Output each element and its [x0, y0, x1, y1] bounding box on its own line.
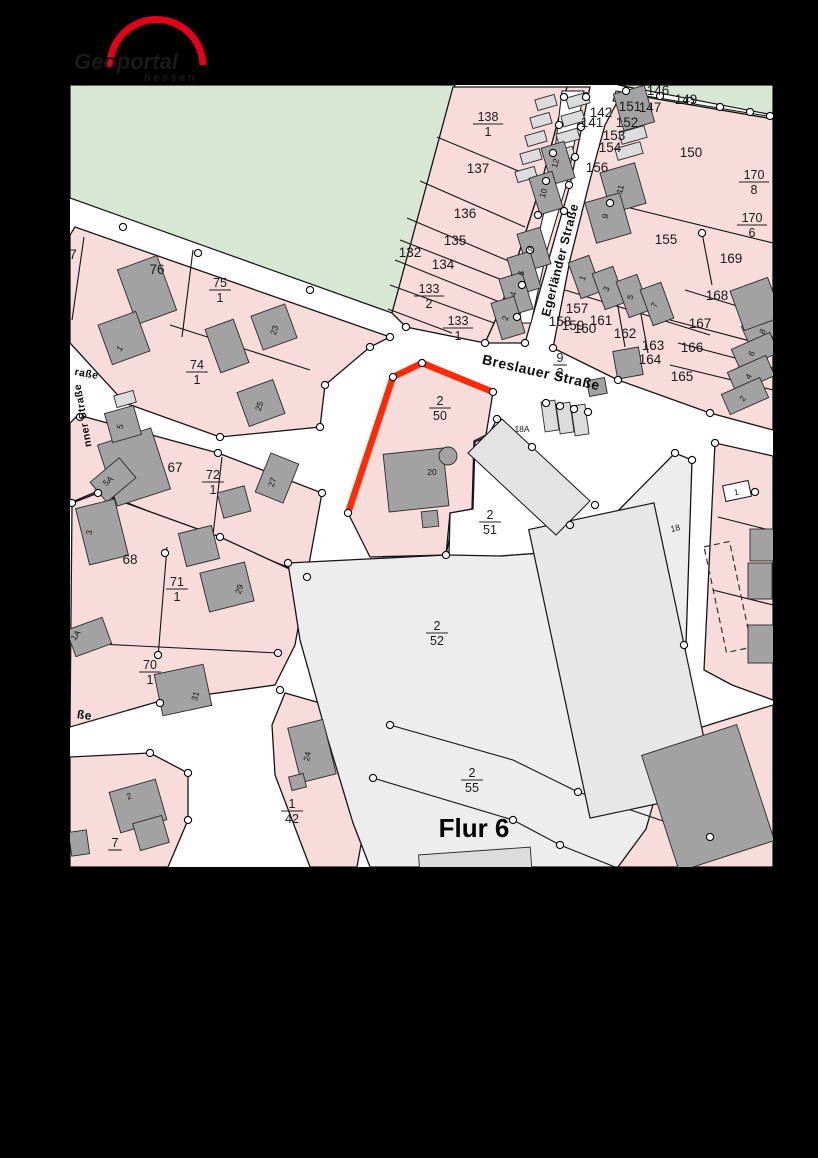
parcel-number: 7 [70, 247, 77, 262]
boundary-point [688, 456, 695, 463]
boundary-point [560, 93, 567, 100]
parcel-number-denominator: 6 [749, 226, 756, 240]
parcel-number-numerator: 2 [437, 394, 444, 408]
parcel-number: 164 [639, 352, 662, 367]
parcel-number: 136 [454, 206, 477, 221]
parcel-number: 162 [614, 326, 637, 341]
boundary-point [442, 551, 449, 558]
parcel-number-denominator: 1 [147, 673, 154, 687]
parcel-number: 167 [689, 316, 712, 331]
boundary-point [389, 373, 396, 380]
parcel-number-denominator: 52 [430, 634, 444, 648]
boundary-point [571, 153, 578, 160]
flur-label: Flur 6 [439, 813, 510, 843]
boundary-point [306, 286, 313, 293]
boundary-point [513, 313, 520, 320]
boundary-point [518, 281, 525, 288]
boundary-point [318, 489, 325, 496]
parcel-number-numerator: 2 [469, 766, 476, 780]
logo-title: Geoportal [74, 49, 179, 74]
boundary-point [276, 686, 283, 693]
boundary-point [70, 499, 76, 506]
logo-subtitle: hessen [144, 72, 197, 84]
boundary-point [386, 333, 393, 340]
building [750, 529, 773, 561]
boundary-point [184, 816, 191, 823]
parcel-number-numerator: 2 [487, 508, 494, 522]
building [289, 773, 307, 790]
boundary-point [418, 359, 425, 366]
parcel-number: 155 [655, 232, 678, 247]
parcel-number: 156 [586, 160, 609, 175]
parcel-number: 141 [581, 115, 604, 130]
parcel-number: 68 [122, 552, 137, 567]
page-background: Geoportal hessen 76137136135134132146147… [0, 0, 818, 1158]
boundary-point [94, 489, 101, 496]
parcel-number: 169 [720, 251, 743, 266]
boundary-point [706, 833, 713, 840]
geoportal-logo[interactable]: Geoportal hessen [70, 12, 245, 84]
parcel-number: 67 [167, 460, 182, 475]
house-number: 20 [427, 467, 437, 477]
boundary-point [402, 323, 409, 330]
parcel-number: 134 [432, 257, 455, 272]
boundary-point [556, 402, 563, 409]
boundary-point [565, 181, 572, 188]
boundary-point [481, 339, 488, 346]
parcel-number-numerator: 72 [206, 468, 220, 482]
parcel-number-numerator: 70 [143, 658, 157, 672]
boundary-point [606, 199, 613, 206]
parcel-number-denominator: 1 [174, 590, 181, 604]
building [748, 625, 773, 663]
street-name: ße [76, 707, 93, 723]
parcel-number: 166 [681, 340, 704, 355]
boundary-point [698, 229, 705, 236]
boundary-point [184, 769, 191, 776]
boundary-point [671, 449, 678, 456]
parcel-number-numerator: 75 [213, 276, 227, 290]
parcel-number-numerator: 170 [742, 211, 763, 225]
parcel-number: 132 [399, 245, 422, 260]
boundary-point [344, 509, 351, 516]
parcel-number-numerator: 170 [744, 168, 765, 182]
parcel-number-numerator: 133 [419, 282, 440, 296]
boundary-point [751, 488, 758, 495]
boundary-point [570, 405, 577, 412]
parcel-number: 163 [642, 338, 665, 353]
boundary-point [574, 788, 581, 795]
boundary-point [156, 699, 163, 706]
parcel-number: 135 [444, 233, 467, 248]
boundary-point [591, 501, 598, 508]
boundary-point [493, 415, 500, 422]
parcel-number-denominator: 55 [465, 781, 479, 795]
building [748, 563, 772, 599]
parcel-number: 146 [647, 85, 670, 98]
parcel-number: 150 [680, 145, 703, 160]
boundary-point [146, 749, 153, 756]
boundary-point [584, 408, 591, 415]
parcel-number-denominator: 2 [426, 297, 433, 311]
parcel-number-denominator: 1 [485, 125, 492, 139]
boundary-point [706, 409, 713, 416]
parcel-number-denominator: 51 [483, 523, 497, 537]
boundary-point [549, 149, 556, 156]
cadastral-map[interactable]: 7613713613513413214614714914215114115215… [70, 85, 773, 867]
parcel-number: 76 [149, 262, 164, 277]
boundary-point [766, 112, 773, 119]
boundary-point [746, 108, 753, 115]
building-bay [439, 447, 457, 465]
boundary-point [489, 388, 496, 395]
boundary-point [528, 443, 535, 450]
boundary-point [711, 439, 718, 446]
parcel-number-numerator: 1 [289, 797, 296, 811]
boundary-point [284, 559, 291, 566]
parcel-number: 137 [467, 161, 490, 176]
boundary-point [316, 423, 323, 430]
boundary-point [274, 649, 281, 656]
parcel-number-numerator: 71 [170, 575, 184, 589]
boundary-point [119, 223, 126, 230]
boundary-point [582, 93, 589, 100]
boundary-point [614, 376, 621, 383]
boundary-point [521, 339, 528, 346]
boundary-point [622, 87, 629, 94]
parcel-number-denominator: 8 [751, 183, 758, 197]
parcel-number-denominator: 50 [433, 409, 447, 423]
parcel-number: 154 [599, 140, 622, 155]
boundary-point [566, 521, 573, 528]
parcel-number-numerator: 74 [190, 358, 204, 372]
parcel-number-denominator: 1 [217, 291, 224, 305]
boundary-point [680, 641, 687, 648]
parcel-number: 147 [639, 100, 662, 115]
boundary-point [542, 177, 549, 184]
parcel-number-numerator: 2 [434, 619, 441, 633]
building [70, 830, 90, 856]
parcel-number-numerator: 7 [112, 836, 119, 850]
boundary-point [161, 549, 168, 556]
boundary-point [556, 841, 563, 848]
building [421, 510, 439, 528]
boundary-point [214, 449, 221, 456]
boundary-point [321, 381, 328, 388]
parcel-number: 168 [706, 288, 729, 303]
parcel-number: 149 [675, 92, 698, 107]
parcel-number-denominator: 42 [285, 812, 299, 826]
boundary-point [509, 816, 516, 823]
boundary-point [716, 103, 723, 110]
boundary-point [366, 343, 373, 350]
boundary-point [303, 573, 310, 580]
boundary-point [555, 121, 562, 128]
parcel-number: 157 [566, 301, 589, 316]
parcel-number: 165 [671, 369, 694, 384]
parcel-number-denominator: 1 [455, 329, 462, 343]
boundary-point [386, 721, 393, 728]
boundary-point [542, 399, 549, 406]
boundary-point [369, 774, 376, 781]
house-number: 18A [514, 424, 529, 434]
parcel-number: 151 [619, 99, 642, 114]
boundary-point [216, 433, 223, 440]
parcel-number-numerator: 138 [478, 110, 499, 124]
boundary-point [549, 344, 556, 351]
parcel-number-denominator: 1 [210, 483, 217, 497]
boundary-point [534, 211, 541, 218]
boundary-point [216, 533, 223, 540]
boundary-point [194, 249, 201, 256]
parcel-number-denominator: 1 [194, 373, 201, 387]
parcel-number-numerator: 9 [557, 351, 564, 365]
parcel-number-numerator: 133 [448, 314, 469, 328]
